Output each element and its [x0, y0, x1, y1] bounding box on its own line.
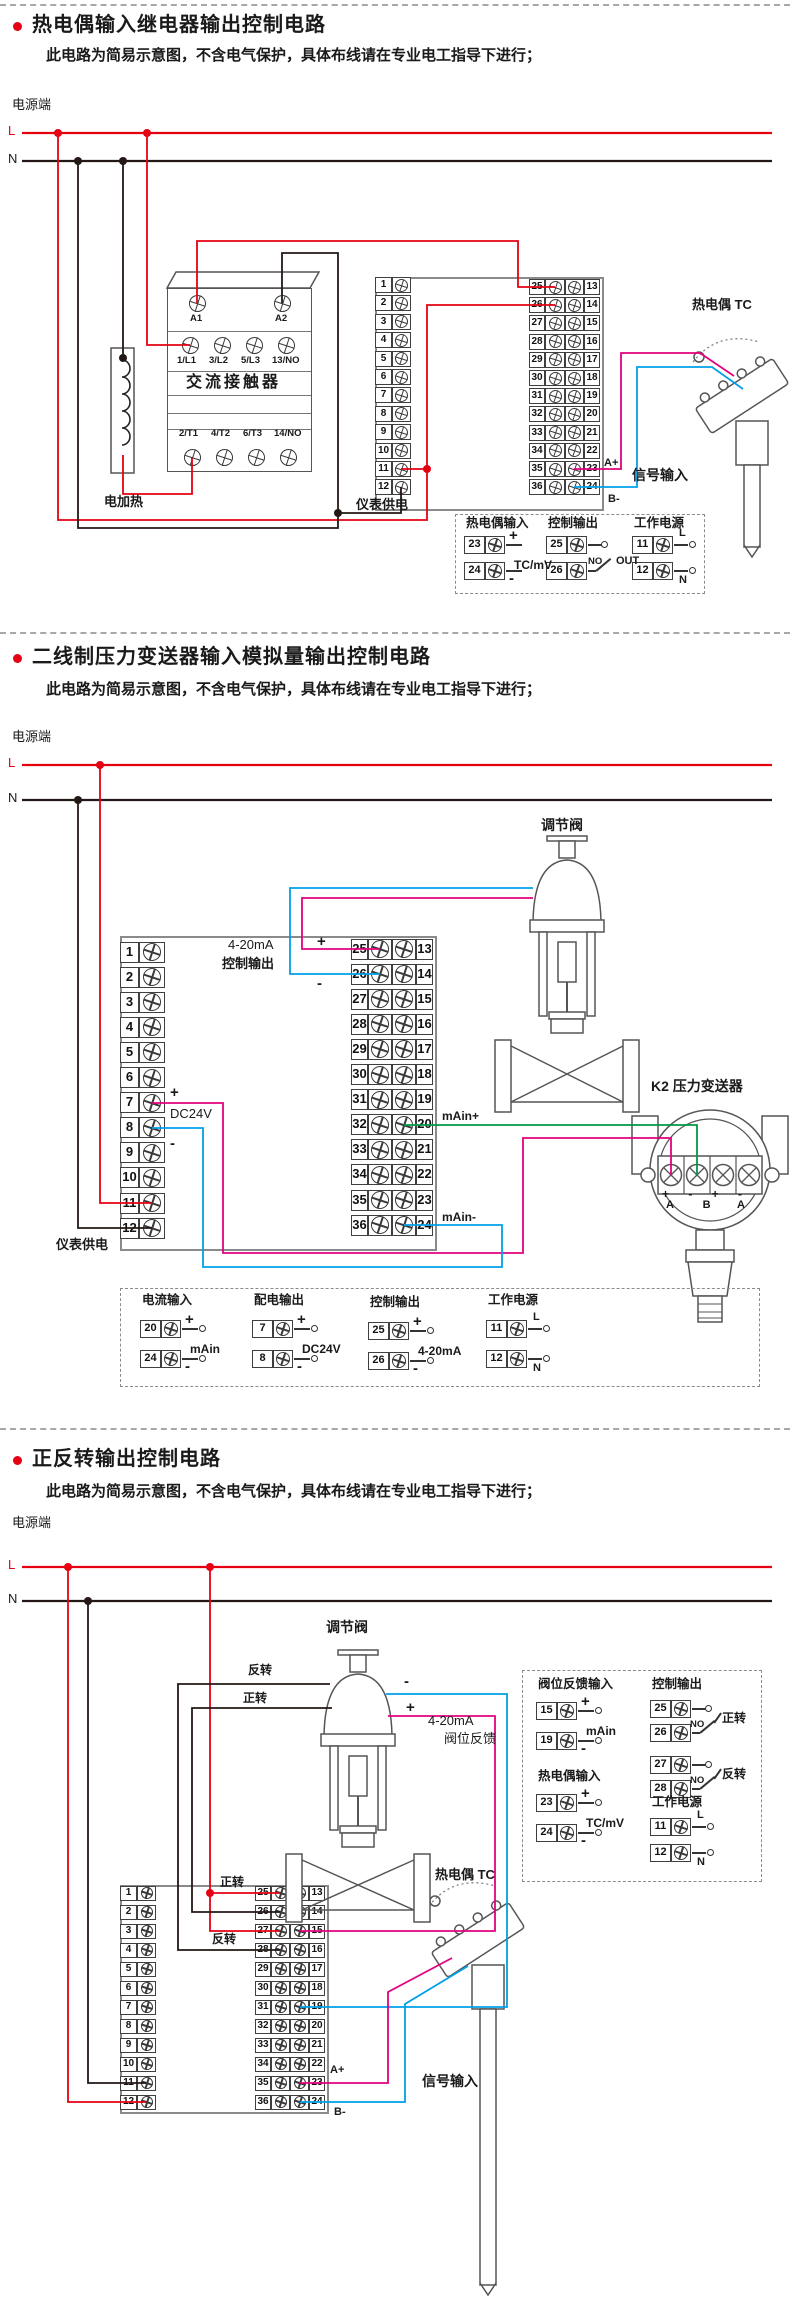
- open-terminal-icon: [427, 1327, 434, 1334]
- label-1: A2: [275, 314, 287, 324]
- junction-dot: [206, 1563, 214, 1571]
- label-name: 交流接触器: [186, 374, 281, 392]
- label-0: A1: [190, 314, 202, 324]
- transmitter-neck: [696, 1230, 724, 1250]
- valve-stem-block: [349, 1756, 367, 1796]
- wiring-layer: [0, 0, 790, 2323]
- tc-probe: [480, 2009, 496, 2285]
- wiring-diagram-page: 热电偶输入继电器输出控制电路此电路为简易示意图，不含电气保护，具体布线请在专业电…: [0, 0, 790, 2323]
- red-bullet-icon: [13, 22, 22, 31]
- open-terminal-icon: [595, 1799, 602, 1806]
- label-2: 5/L3: [241, 356, 260, 366]
- label-minus: -: [404, 1674, 409, 1691]
- label-fwd_top: 正转: [243, 1692, 267, 1705]
- junction-dot: [64, 1563, 72, 1571]
- label-power_label: 电源端: [12, 98, 51, 112]
- label-line_n: N: [8, 1592, 17, 1606]
- legend-note: mAin: [586, 1725, 616, 1738]
- tc-collar: [736, 421, 768, 465]
- open-terminal-icon: [543, 1325, 550, 1332]
- wire: [88, 1601, 146, 2083]
- label-main_minus: mAin-: [442, 1211, 476, 1224]
- legend-note: 正转: [722, 1712, 746, 1725]
- legend-lead-line: [674, 570, 688, 572]
- line-label: L: [533, 1311, 540, 1323]
- section-title: 正反转输出控制电路: [32, 1448, 221, 1470]
- label-3: 13/NO: [272, 356, 299, 366]
- valve-body: [302, 1860, 414, 1910]
- sign-label: +: [297, 1312, 306, 1329]
- valve-knob: [559, 841, 575, 858]
- legend-note: 4-20mA: [418, 1345, 461, 1358]
- junction-dot: [84, 1597, 92, 1605]
- label-dc24v: DC24V: [170, 1107, 212, 1121]
- valve-yoke-right: [587, 932, 595, 1016]
- junction-dot: [206, 1889, 214, 1897]
- junction-dot: [334, 509, 342, 517]
- valve-yoke-right: [378, 1746, 386, 1830]
- label-heater_label: 电加热: [104, 495, 143, 509]
- valve-stem-block: [558, 942, 576, 982]
- label-minus: -: [170, 1136, 175, 1153]
- label-signal_input: 信号输入: [632, 468, 688, 483]
- legend-lead-line: [528, 1328, 542, 1330]
- sign-label: +: [185, 1312, 194, 1329]
- line-label: N: [679, 574, 687, 586]
- line-label: L: [679, 527, 686, 539]
- red-bullet-icon: [13, 1456, 22, 1465]
- legend-lead-line: [692, 1826, 706, 1828]
- open-terminal-icon: [707, 1823, 714, 1830]
- label-signal_input: 信号输入: [422, 2074, 478, 2089]
- label-b_minus: B-: [608, 493, 620, 505]
- sign-label: -: [413, 1361, 418, 1378]
- label-plus: +: [406, 1700, 415, 1717]
- tc-collar: [472, 1965, 504, 2009]
- open-terminal-icon: [705, 1705, 712, 1712]
- legend-lead-line: [692, 1852, 706, 1854]
- label-b_minus: B-: [334, 2106, 346, 2118]
- wire: [100, 765, 152, 1203]
- legend-lead-line: [692, 1764, 706, 1766]
- no-contact-label: NO: [588, 557, 602, 567]
- legend-group-title: 工作电源: [488, 1294, 538, 1308]
- wire: [152, 1128, 502, 1267]
- valve-actuator-base: [321, 1734, 395, 1746]
- label-power_label: 电源端: [12, 730, 51, 744]
- valve-bonnet: [342, 1833, 374, 1847]
- junction-dot: [96, 761, 104, 769]
- legend-group-title: 控制输出: [370, 1296, 420, 1310]
- legend-box: [120, 1288, 760, 1387]
- valve-knob: [350, 1655, 366, 1672]
- label-meter_supply_label: 仪表供电: [356, 498, 408, 512]
- wire: [210, 1567, 280, 1893]
- legend-note: DC24V: [302, 1343, 341, 1356]
- sign-label: +: [509, 528, 518, 545]
- label-a_plus: A+: [330, 2064, 344, 2076]
- label-a_plus: A+: [604, 457, 618, 469]
- open-terminal-icon: [689, 567, 696, 574]
- label-2: 6/T3: [243, 429, 262, 439]
- valve-plate: [549, 1012, 585, 1019]
- red-bullet-icon: [13, 654, 22, 663]
- legend-group-title: 工作电源: [652, 1796, 702, 1810]
- section-subtitle: 此电路为简易示意图，不含电气保护，具体布线请在专业电工指导下进行；: [46, 48, 541, 65]
- junction-dot: [119, 157, 127, 165]
- open-terminal-icon: [595, 1707, 602, 1714]
- line-label: L: [697, 1809, 704, 1821]
- transmitter-open-terminal: [641, 1168, 655, 1182]
- wire: [147, 133, 190, 345]
- legend-group-title: 配电输出: [254, 1294, 304, 1308]
- section-title: 二线制压力变送器输入模拟量输出控制电路: [32, 646, 431, 668]
- legend-note: mAin: [190, 1343, 220, 1356]
- legend-group-title: 热电偶输入: [538, 1770, 601, 1784]
- label-valve_label: 调节阀: [541, 818, 583, 833]
- label-transmitter_ab: A B: [666, 1199, 724, 1211]
- valve-body: [511, 1046, 623, 1102]
- line-label: N: [697, 1856, 705, 1868]
- label-valve_label: 调节阀: [326, 1620, 368, 1635]
- label-output_label_2: 控制输出: [222, 957, 274, 971]
- label-rev_bottom: 反转: [212, 1933, 236, 1946]
- valve-flange-left: [286, 1854, 302, 1922]
- sign-label: +: [581, 1694, 590, 1711]
- label-0: 2/T1: [179, 429, 198, 439]
- label-transmitter_a2: A: [737, 1199, 758, 1211]
- valve-plate: [340, 1826, 376, 1833]
- label-plus: +: [170, 1085, 179, 1102]
- label-1: 4/T2: [211, 429, 230, 439]
- label-line_n: N: [8, 152, 17, 166]
- label-meter_supply_label: 仪表供电: [56, 1238, 108, 1252]
- sign-label: -: [297, 1359, 302, 1376]
- open-terminal-icon: [705, 1761, 712, 1768]
- label-tc: 热电偶 TC: [435, 1868, 495, 1882]
- wire: [68, 1567, 146, 2102]
- valve-actuator-dome: [324, 1674, 392, 1736]
- label-0: 1/L1: [177, 356, 196, 366]
- wire: [302, 898, 533, 949]
- junction-dot: [74, 157, 82, 165]
- line-label: N: [533, 1362, 541, 1374]
- transmitter-collar: [686, 1250, 734, 1262]
- label-feedback_2: 阀位反馈: [444, 1732, 496, 1746]
- label-line_l: L: [8, 124, 15, 138]
- sign-label: -: [581, 1833, 586, 1850]
- sign-label: +: [581, 1786, 590, 1803]
- wire: [290, 888, 533, 974]
- valve-actuator-dome: [533, 860, 601, 922]
- legend-lead-line: [528, 1358, 542, 1360]
- legend-group-title: 工作电源: [634, 517, 684, 531]
- junction-dot: [74, 796, 82, 804]
- junction-dot: [423, 465, 431, 473]
- wire: [300, 1958, 452, 2083]
- label-feedback_1: 4-20mA: [428, 1714, 474, 1728]
- valve-flange-left: [495, 1040, 511, 1112]
- open-terminal-icon: [311, 1325, 318, 1332]
- valve-actuator-base: [530, 920, 604, 932]
- open-terminal-icon: [543, 1355, 550, 1362]
- label-line_n: N: [8, 791, 17, 805]
- open-terminal-icon: [707, 1849, 714, 1856]
- label-main_plus: mAin+: [442, 1110, 479, 1123]
- label-rev_top: 反转: [248, 1664, 272, 1677]
- legend-lead-line: [588, 544, 602, 546]
- legend-note: TC/mV: [514, 559, 552, 572]
- junction-dot: [54, 129, 62, 137]
- label-power_label: 电源端: [12, 1516, 51, 1530]
- legend-lead-line: [674, 544, 688, 546]
- legend-group-title: 控制输出: [652, 1678, 702, 1692]
- label-1: 3/L2: [209, 356, 228, 366]
- section-title: 热电偶输入继电器输出控制电路: [32, 14, 326, 36]
- sign-label: -: [185, 1359, 190, 1376]
- sign-label: +: [413, 1314, 422, 1331]
- tc-probe: [744, 465, 760, 547]
- open-terminal-icon: [689, 541, 696, 548]
- label-output_label_1: 4-20mA: [228, 938, 274, 952]
- legend-note: 反转: [722, 1768, 746, 1781]
- label-transmitter_label: K2 压力变送器: [651, 1079, 743, 1094]
- legend-lead-line: [692, 1708, 706, 1710]
- no-contact-label: NO: [690, 1720, 704, 1730]
- label-tc: 热电偶 TC: [692, 298, 752, 312]
- valve-flange-right: [414, 1854, 430, 1922]
- open-terminal-icon: [199, 1325, 206, 1332]
- label-line_l: L: [8, 756, 15, 770]
- wire: [192, 1708, 332, 1912]
- junction-dot: [119, 354, 127, 362]
- legend-group-title: 热电偶输入: [466, 517, 529, 531]
- section-subtitle: 此电路为简易示意图，不含电气保护，具体布线请在专业电工指导下进行；: [46, 682, 541, 699]
- contactor-flap: [167, 272, 319, 288]
- section-subtitle: 此电路为简易示意图，不含电气保护，具体布线请在专业电工指导下进行；: [46, 1484, 541, 1501]
- label-plus: +: [317, 934, 326, 951]
- label-3: 14/NO: [274, 429, 301, 439]
- valve-flange-right: [623, 1040, 639, 1112]
- tc-cap: [430, 1896, 440, 1906]
- valve-bonnet: [551, 1019, 583, 1033]
- label-minus: -: [317, 976, 322, 993]
- legend-group-title: 控制输出: [548, 517, 598, 531]
- valve-yoke-left: [539, 932, 547, 1016]
- legend-note: OUT: [616, 555, 639, 567]
- sign-label: -: [509, 571, 514, 588]
- legend-group-title: 阀位反馈输入: [538, 1678, 613, 1692]
- junction-dot: [143, 129, 151, 137]
- open-terminal-icon: [601, 541, 608, 548]
- wire: [78, 800, 152, 1228]
- label-fwd_bottom: 正转: [220, 1876, 244, 1889]
- no-contact-label: NO: [690, 1776, 704, 1786]
- sign-label: -: [581, 1741, 586, 1758]
- legend-group-title: 电流输入: [142, 1294, 192, 1308]
- legend-note: TC/mV: [586, 1817, 624, 1830]
- label-line_l: L: [8, 1558, 15, 1572]
- transmitter-open-terminal: [765, 1168, 779, 1182]
- valve-yoke-left: [330, 1746, 338, 1830]
